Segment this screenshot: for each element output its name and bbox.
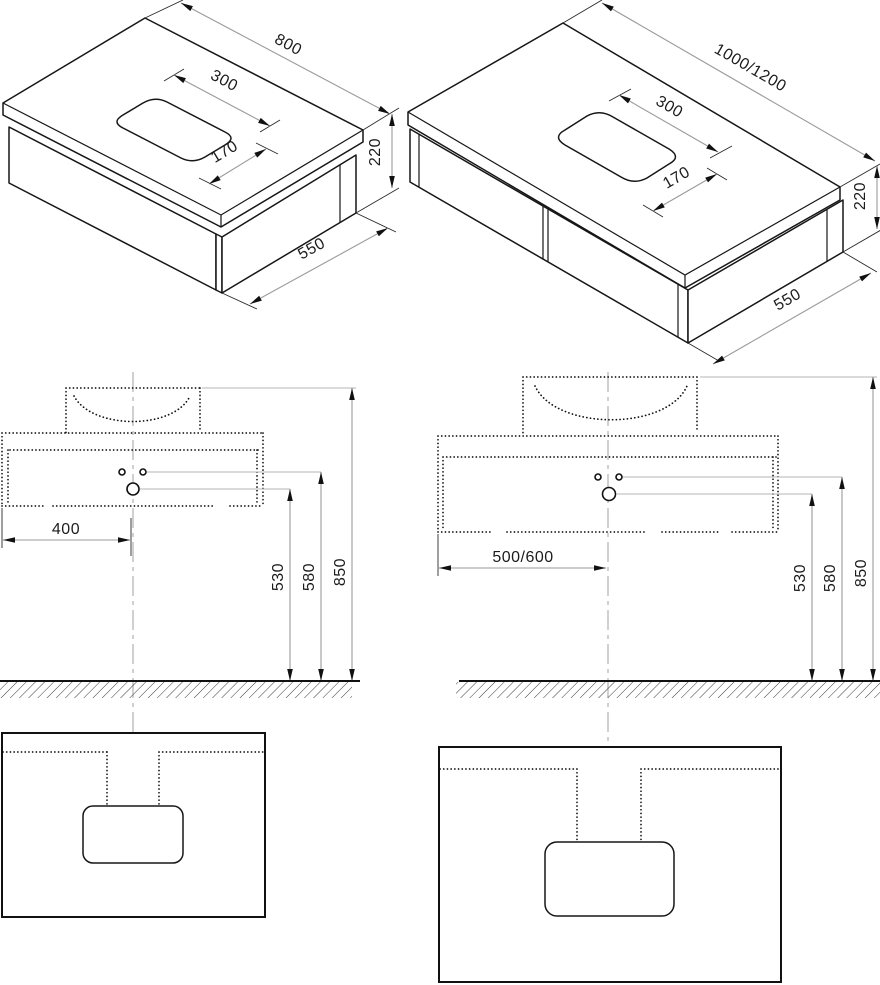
dim-530-label: 530 <box>792 564 809 592</box>
mounting-hole-right <box>616 474 622 480</box>
iso-view-right: 1000/1200 300 170 220 550 <box>408 0 880 364</box>
mounting-hole-right <box>140 469 146 475</box>
washbasin-bowl-arc <box>535 386 687 420</box>
dim-offset-label: 500/600 <box>492 549 553 566</box>
plan-view-left <box>2 733 265 917</box>
dim-220-label: 220 <box>852 182 869 210</box>
floor-hatch <box>456 682 880 698</box>
dim-850-label: 850 <box>853 559 870 587</box>
dim-580-label: 580 <box>301 563 318 591</box>
dim-220-extension <box>843 230 880 252</box>
dim-850-label: 850 <box>332 558 349 586</box>
plan-view-right <box>439 747 781 982</box>
basin-cutout-plan <box>83 806 183 863</box>
dim-400-label: 400 <box>52 521 80 538</box>
dim-530-label: 530 <box>270 563 287 591</box>
basin-cutout-plan <box>545 842 674 916</box>
technical-drawing: 800 300 170 220 550 1000/1200 <box>0 0 880 985</box>
drain-hole <box>603 488 616 501</box>
dim-220-extension <box>356 188 399 213</box>
dim-width-label: 1000/1200 <box>711 41 789 96</box>
floor-hatch <box>0 682 352 698</box>
mounting-hole-left <box>119 469 125 475</box>
washbasin-bowl-arc <box>74 396 190 422</box>
iso-view-left: 800 300 170 220 550 <box>3 0 399 309</box>
dim-220-label: 220 <box>367 138 384 166</box>
mounting-hole-left <box>595 474 601 480</box>
dim-580-label: 580 <box>822 564 839 592</box>
drain-hole <box>127 483 139 495</box>
washbasin-dotted-outline <box>523 377 697 435</box>
cabinet-side-panel <box>216 234 222 293</box>
dim-800-label: 800 <box>272 31 305 59</box>
